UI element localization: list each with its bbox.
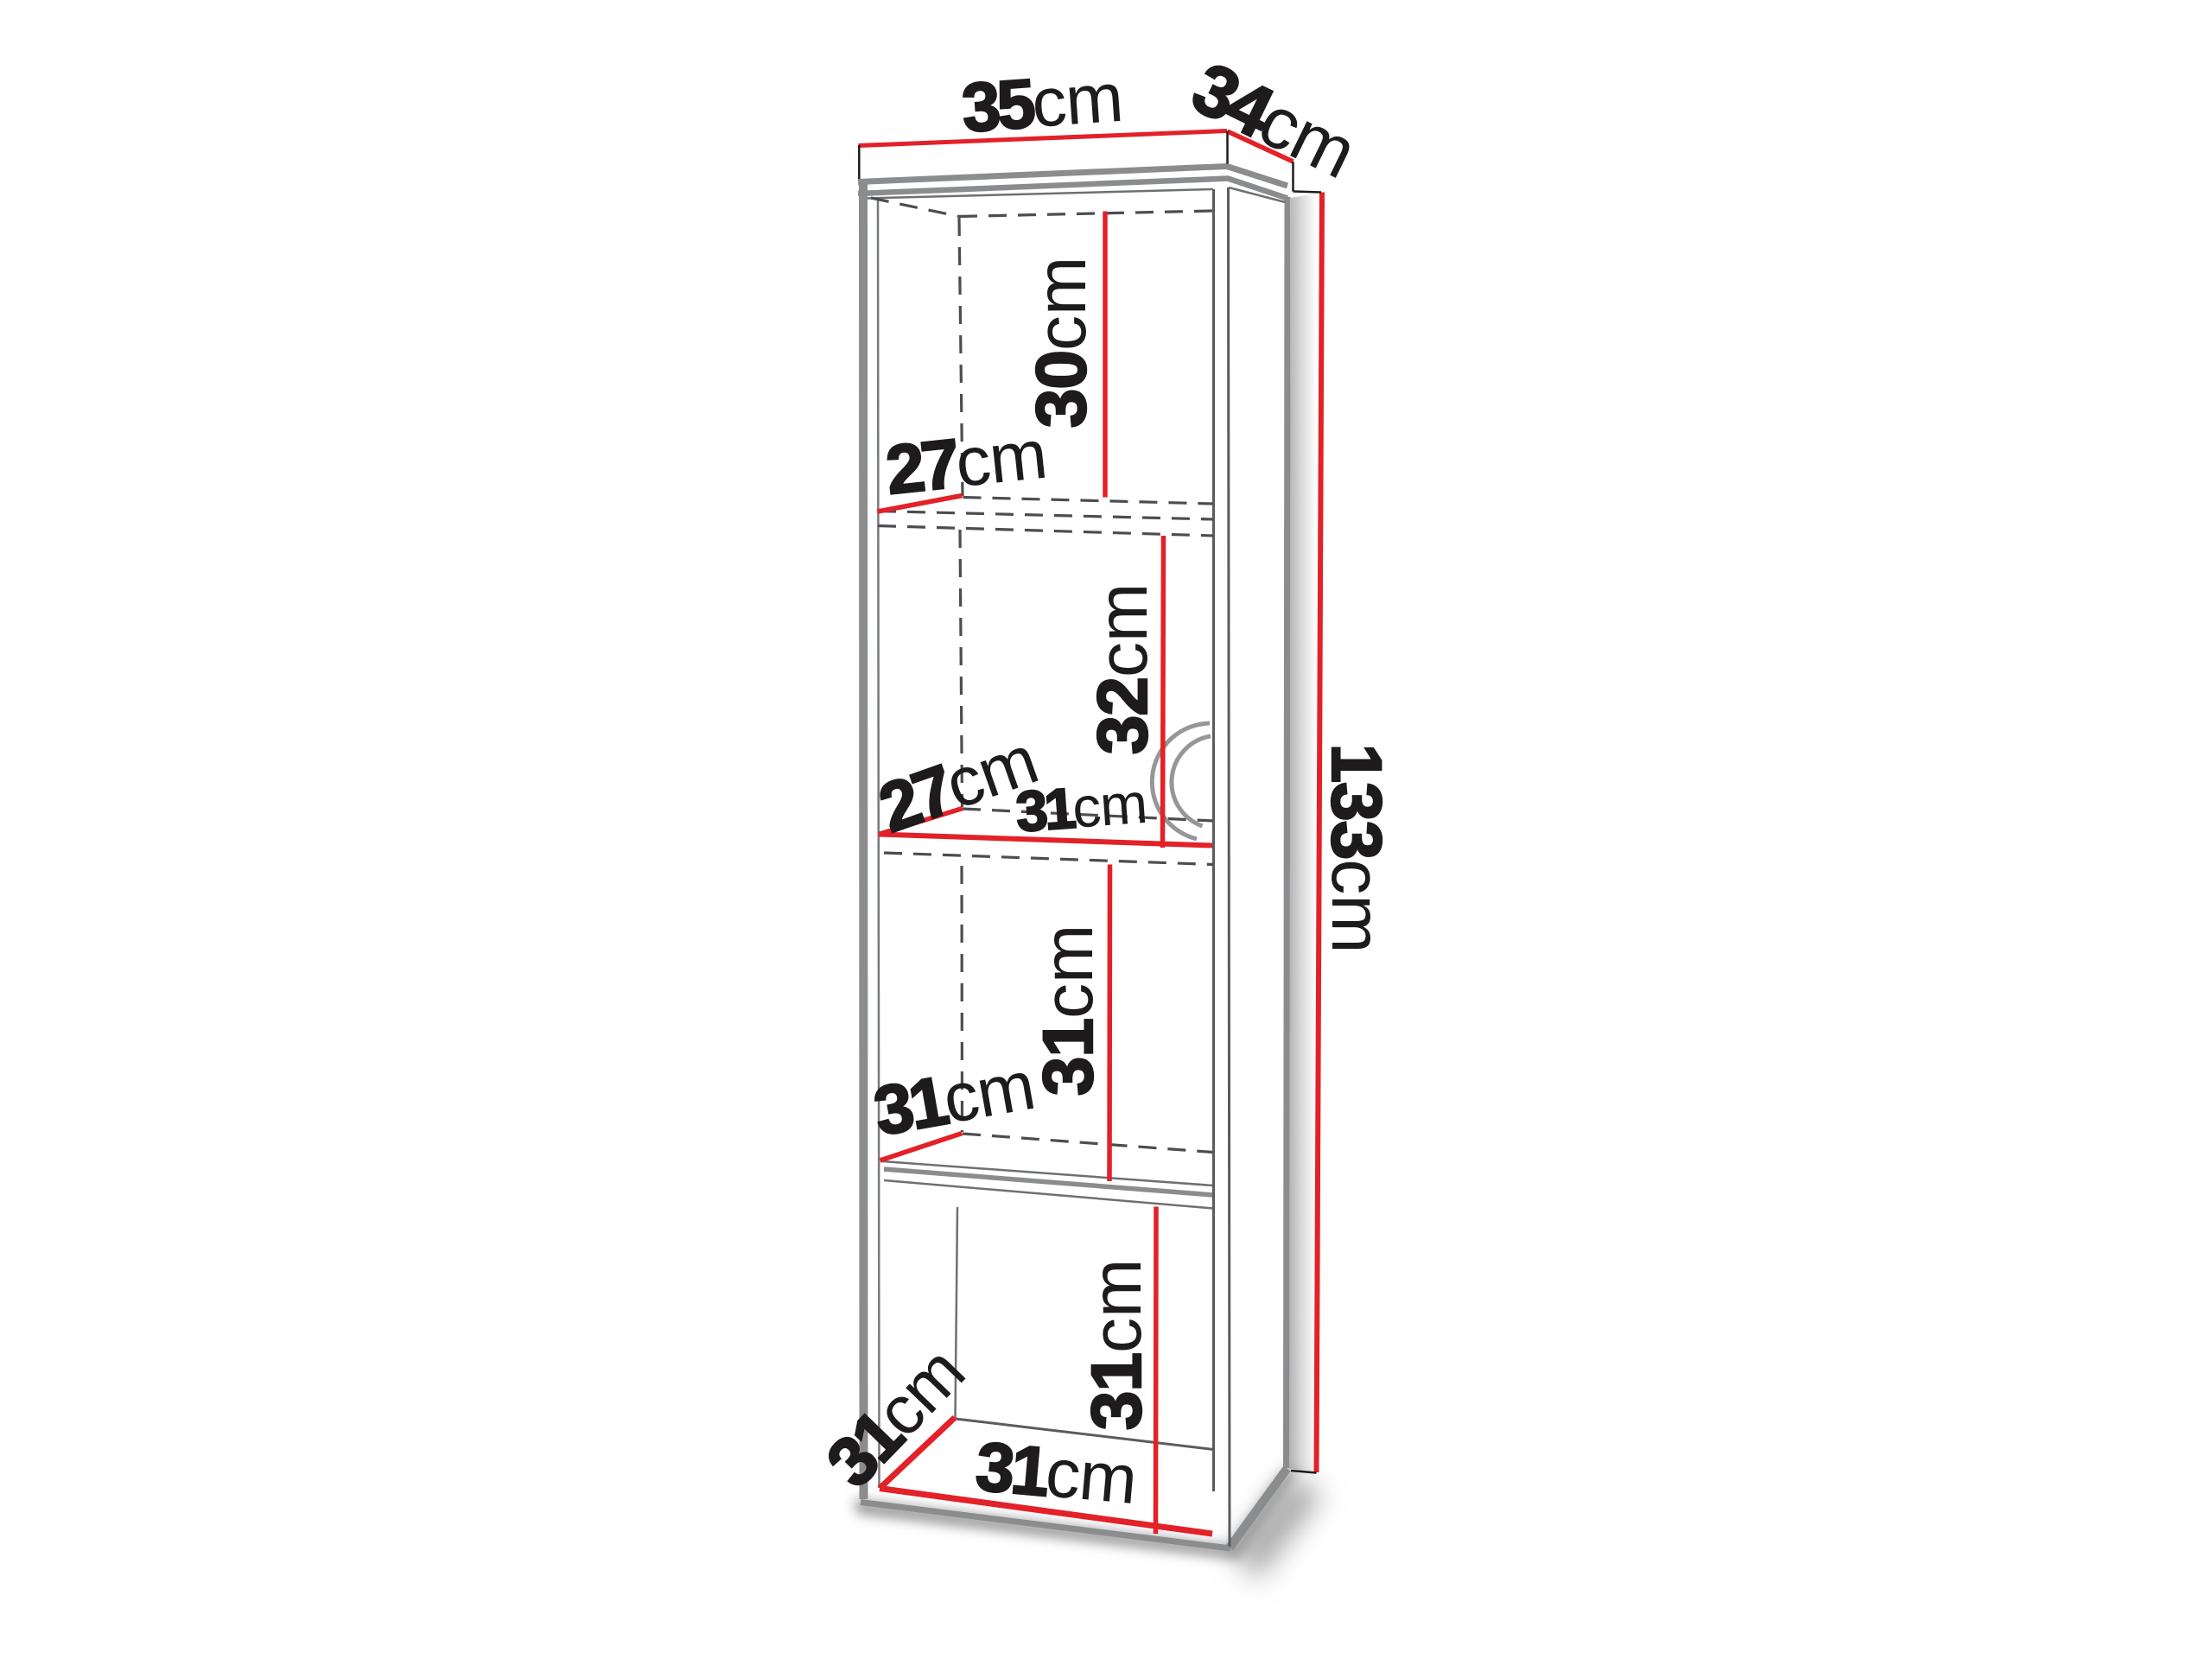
svg-text:31cm: 31cm: [1029, 925, 1108, 1096]
svg-text:31cm: 31cm: [973, 1427, 1140, 1518]
svg-text:35cm: 35cm: [959, 59, 1124, 147]
svg-text:32cm: 32cm: [1084, 583, 1162, 755]
svg-text:133cm: 133cm: [1317, 743, 1395, 953]
svg-text:31cm: 31cm: [1077, 1259, 1156, 1431]
svg-text:31cm: 31cm: [1014, 771, 1148, 843]
svg-text:30cm: 30cm: [1022, 257, 1101, 429]
